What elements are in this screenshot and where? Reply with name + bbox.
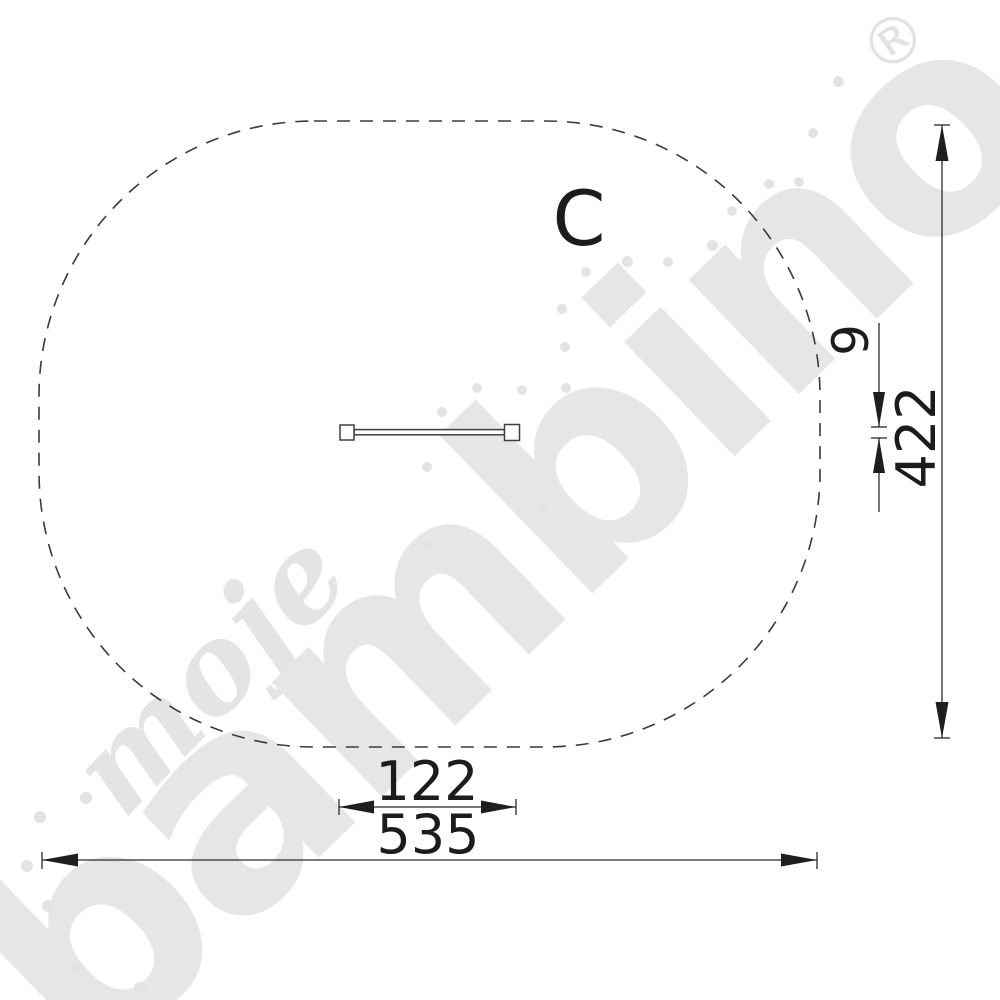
dimension-value-122: 122	[375, 755, 478, 809]
item-label-c: C	[552, 181, 605, 257]
arrow-left-icon	[339, 801, 374, 814]
technical-drawing-page: moje bambino ®	[0, 0, 1000, 1000]
beam-right-post	[505, 425, 520, 441]
beam-left-post	[340, 425, 354, 440]
arrow-right-icon	[481, 801, 516, 814]
plan-drawing	[0, 0, 1000, 1000]
dimension-value-535: 535	[376, 808, 479, 862]
arrow-up-icon	[936, 125, 949, 161]
dimension-value-422: 422	[890, 385, 944, 488]
arrow-up-icon	[873, 438, 885, 473]
balance-beam	[340, 425, 520, 441]
dimension-value-9: 9	[826, 324, 876, 356]
arrow-down-icon	[936, 702, 949, 738]
arrow-down-icon	[873, 392, 885, 427]
arrow-right-icon	[781, 854, 817, 867]
arrow-left-icon	[42, 854, 78, 867]
beam-bar	[354, 430, 505, 435]
